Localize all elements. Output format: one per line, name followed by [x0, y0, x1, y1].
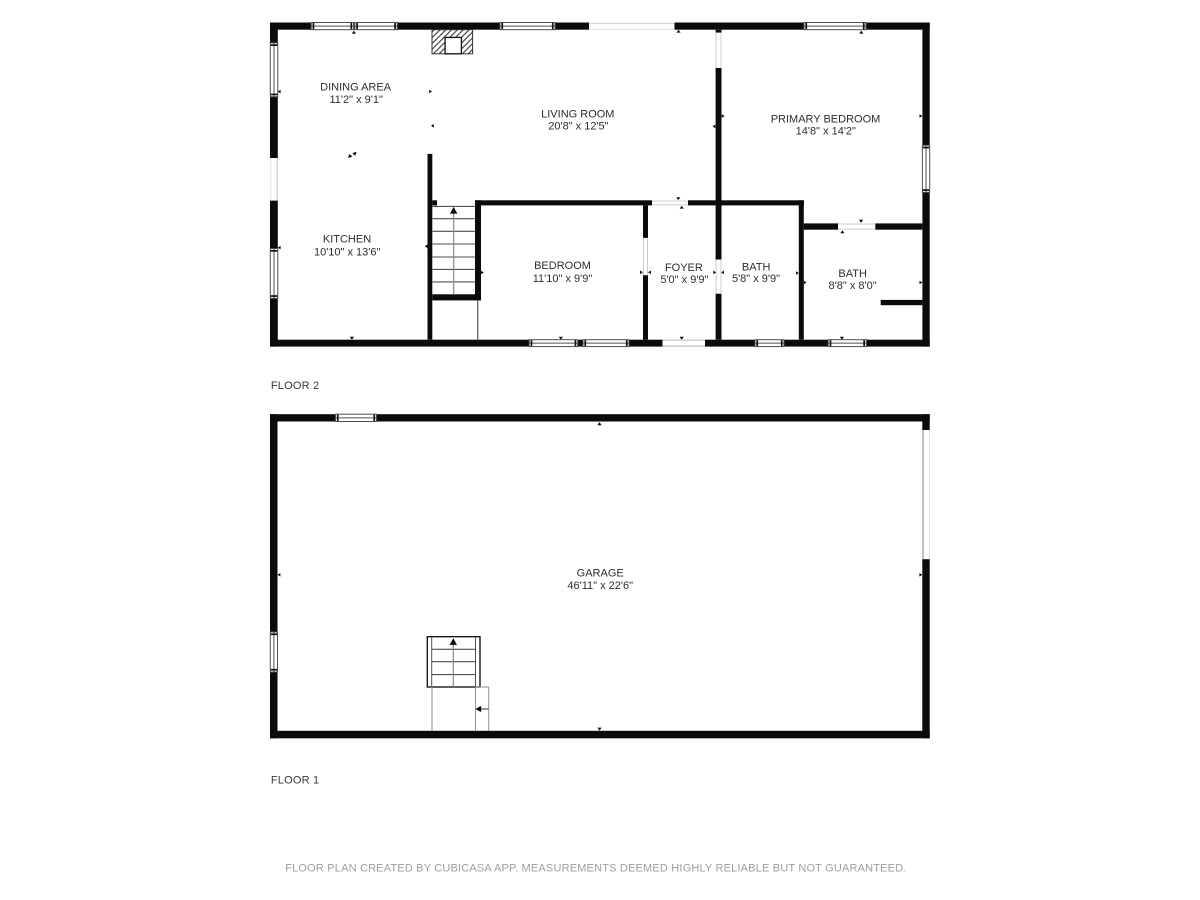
svg-text:FLOOR 2: FLOOR 2 — [271, 380, 319, 392]
svg-text:5'0" x 9'9": 5'0" x 9'9" — [660, 274, 708, 286]
svg-text:PRIMARY BEDROOM: PRIMARY BEDROOM — [771, 114, 881, 126]
svg-text:DINING AREA: DINING AREA — [320, 82, 392, 94]
svg-text:FLOOR PLAN CREATED BY CUBICASA: FLOOR PLAN CREATED BY CUBICASA APP. MEAS… — [285, 863, 906, 875]
svg-text:10'10" x 13'6": 10'10" x 13'6" — [314, 247, 381, 259]
svg-text:KITCHEN: KITCHEN — [323, 233, 371, 245]
svg-text:14'8" x 14'2": 14'8" x 14'2" — [796, 126, 856, 138]
svg-text:FLOOR 1: FLOOR 1 — [271, 774, 319, 786]
svg-text:11'10" x 9'9": 11'10" x 9'9" — [533, 273, 593, 285]
svg-text:FOYER: FOYER — [665, 262, 703, 274]
svg-text:LIVING ROOM: LIVING ROOM — [541, 108, 614, 120]
svg-text:11'2" x 9'1": 11'2" x 9'1" — [329, 94, 382, 106]
svg-text:GARAGE: GARAGE — [577, 568, 624, 580]
svg-text:46'11" x 22'6": 46'11" x 22'6" — [567, 580, 633, 592]
svg-text:5'8" x 9'9": 5'8" x 9'9" — [732, 273, 780, 285]
svg-text:BEDROOM: BEDROOM — [534, 260, 591, 272]
svg-text:BATH: BATH — [742, 262, 771, 274]
svg-text:20'8" x 12'5": 20'8" x 12'5" — [548, 121, 608, 133]
svg-text:BATH: BATH — [838, 268, 867, 280]
svg-text:8'8" x 8'0": 8'8" x 8'0" — [829, 280, 877, 292]
